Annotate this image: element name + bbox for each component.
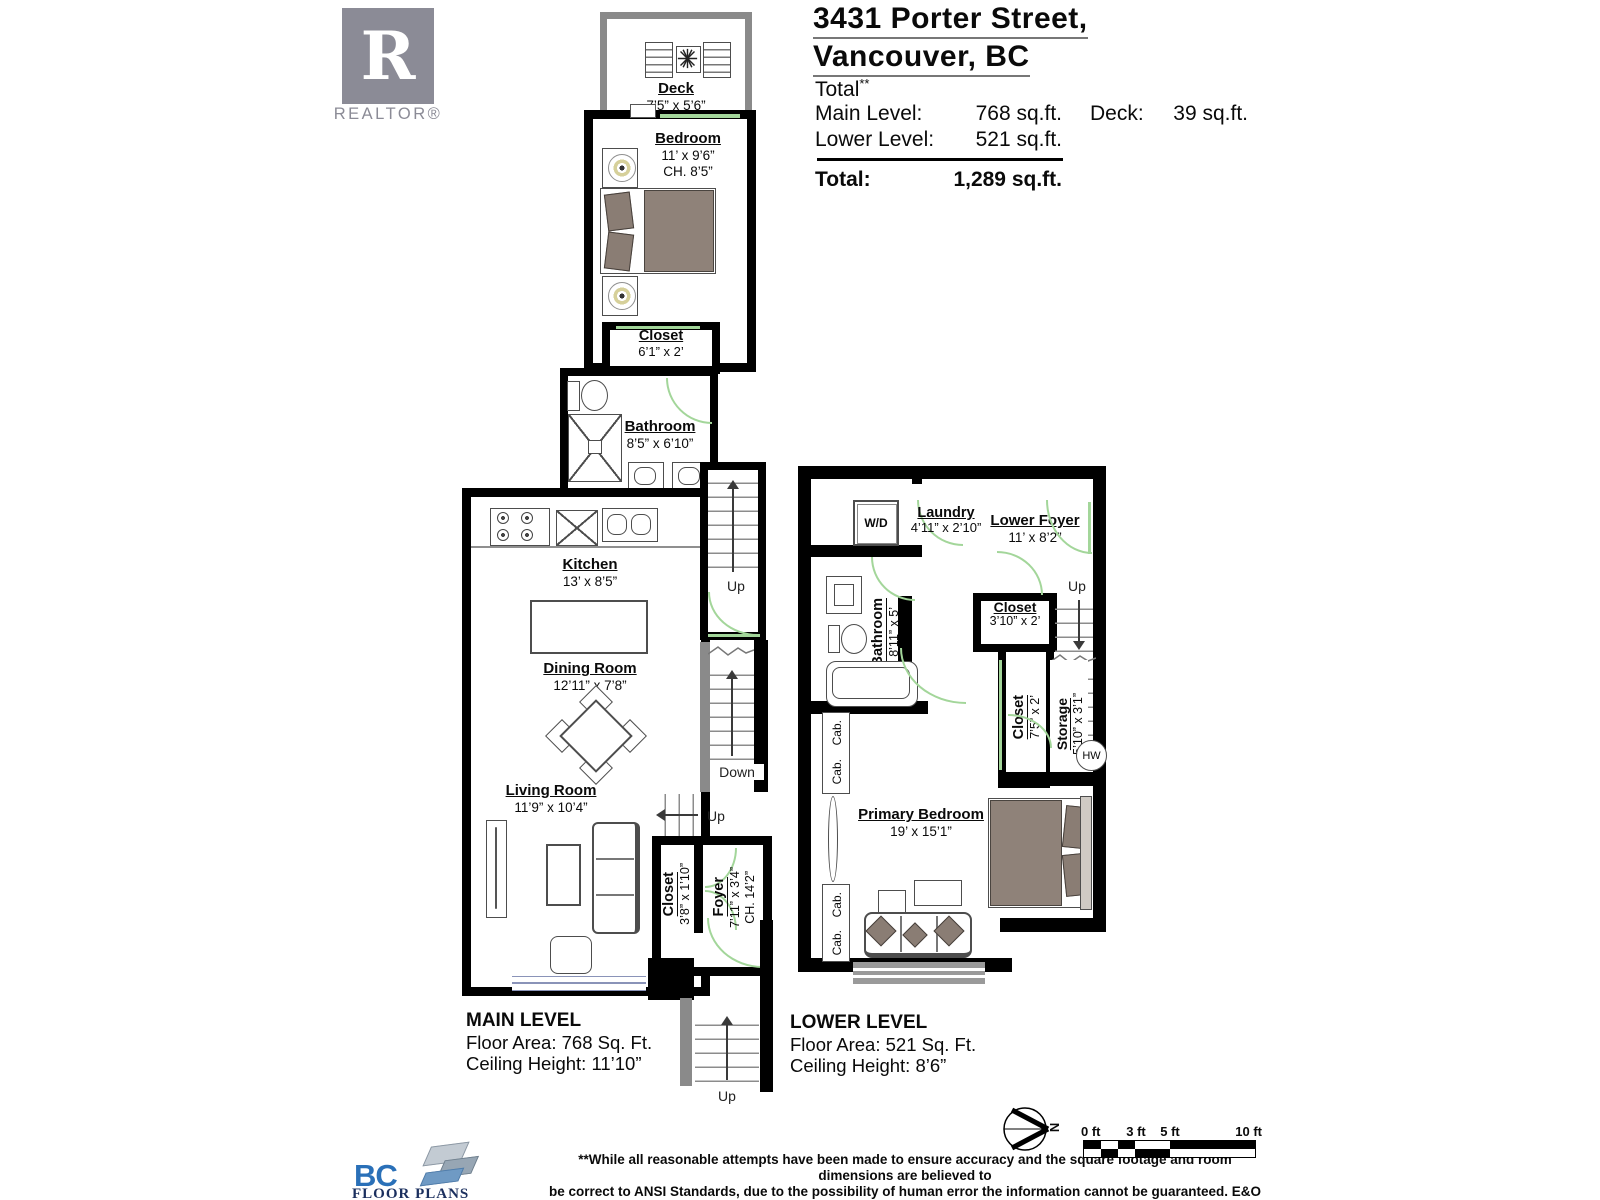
primary-bedroom-label: Primary Bedroom 19’ x 15’1” — [846, 806, 996, 840]
room-name: Dining Room — [505, 660, 675, 678]
burner-icon — [521, 529, 533, 541]
living-room-label: Living Room 11’9” x 10’4” — [471, 782, 631, 816]
entry-closet-label: Closet 3’8” x 1’10” — [658, 846, 694, 942]
cabinet-label: Cab. — [824, 924, 850, 962]
stairs-up-label: Up — [1062, 578, 1092, 594]
washer-dryer-icon: W/D — [853, 500, 899, 546]
hot-water-tank-icon: HW — [1076, 740, 1107, 771]
lower-level-value: 521 sq.ft. — [940, 128, 1062, 152]
scale-cell — [1135, 1141, 1170, 1149]
sketch-shape — [420, 1168, 465, 1187]
sink-basin — [678, 467, 700, 485]
compass-icon: N — [1002, 1104, 1064, 1154]
scale-cell — [1118, 1141, 1135, 1149]
wall-segment — [912, 466, 922, 484]
scale-label-5: 5 ft — [1154, 1124, 1186, 1139]
plant-icon — [677, 47, 698, 70]
wall-segment — [760, 920, 773, 1092]
deck-label: Deck 7’5” x 5’6” — [602, 80, 750, 114]
scale-cell — [1084, 1141, 1101, 1149]
dining-room-label: Dining Room 12’11” x 7’8” — [505, 660, 675, 694]
cabinet-label: Cab. — [824, 714, 850, 752]
wall-segment — [648, 958, 694, 1000]
room-dims: 6’1” x 2’ — [606, 345, 716, 359]
break-line — [708, 644, 754, 658]
scale-cell — [1170, 1149, 1255, 1157]
toilet-icon — [841, 624, 867, 654]
wall-segment — [798, 466, 811, 972]
fireplace-glass — [495, 827, 497, 909]
room-dims: 19’ x 15’1” — [846, 824, 996, 840]
headboard — [1080, 796, 1092, 910]
wall-segment — [1000, 918, 1106, 932]
storage-label: Storage 5’10” x 3’1” — [1050, 660, 1088, 788]
cab-text: Cab. — [830, 720, 844, 745]
bed-duvet — [644, 190, 714, 272]
cab-text: Cab. — [830, 892, 844, 917]
door-swing — [997, 551, 1043, 595]
room-ceiling: CH. 8’5” — [630, 164, 746, 180]
kitchen-label: Kitchen 13’ x 8’5” — [520, 556, 660, 590]
cabinet-label: Cab. — [824, 753, 850, 791]
room-dims: 11’ x 9’6” — [630, 148, 746, 164]
scale-cell — [1101, 1149, 1118, 1157]
wall-segment — [998, 772, 1106, 786]
laundry-label: Laundry 4’11” x 2’10” — [898, 505, 994, 536]
compass-glyph — [1002, 1104, 1054, 1154]
vanity-sink-icon — [826, 576, 862, 614]
coffee-table-icon — [546, 844, 581, 906]
room-name: Kitchen — [520, 556, 660, 574]
total-value: 1,289 sq.ft. — [940, 168, 1062, 192]
sink-basin — [631, 514, 651, 535]
lower-closet-label: Closet 3’10” x 2’ — [979, 600, 1051, 629]
realtor-logo-letter: R — [342, 8, 434, 104]
room-dims: 8’5” x 6’10” — [608, 436, 712, 452]
deck-chair-icon — [703, 42, 731, 78]
level-ceiling: Ceiling Height: 11’10” — [466, 1053, 726, 1074]
toilet-tank — [567, 381, 580, 411]
lower-level-footer: LOWER LEVEL Floor Area: 521 Sq. Ft. Ceil… — [790, 1012, 1090, 1076]
wall-segment — [798, 466, 1106, 479]
total-divider — [817, 158, 1063, 161]
dining-table-icon — [559, 699, 633, 773]
level-title: MAIN LEVEL — [466, 1010, 726, 1032]
bathtub-inner — [832, 667, 910, 699]
realtor-logo-text: REALTOR® — [328, 105, 448, 124]
fireplace-icon — [486, 820, 507, 918]
cab-text: Cab. — [830, 759, 844, 784]
bed-pillow — [604, 232, 634, 272]
room-dims: 3’10” x 2’ — [979, 615, 1051, 629]
wall-segment — [798, 545, 922, 557]
deck-door — [660, 114, 740, 118]
door-leaf — [1088, 502, 1091, 554]
lower-bathroom-label: Bathroom 8’11” x 5’ — [864, 592, 906, 672]
scale-cell — [1118, 1149, 1135, 1157]
room-name: Bathroom — [870, 598, 886, 666]
burner-icon — [497, 512, 509, 524]
closet-label: Closet 6’1” x 2’ — [606, 329, 716, 359]
bifold-door — [999, 660, 1002, 770]
floor-plan-page: R REALTOR® 3431 Porter Street, Vancouver… — [0, 0, 1600, 1200]
window-mullion — [512, 982, 646, 984]
room-name: Bedroom — [630, 130, 746, 148]
armchair-icon — [550, 936, 592, 974]
cab-text: Cab. — [830, 930, 844, 955]
window-icon — [512, 976, 646, 991]
room-dims: 13’ x 8’5” — [520, 574, 660, 590]
room-name: Bathroom — [608, 418, 712, 436]
stair-arrow — [726, 1018, 728, 1080]
wall-segment — [1093, 466, 1106, 931]
disclaimer-line2: be correct to ANSI Standards, due to the… — [545, 1184, 1265, 1200]
sink-basin — [607, 514, 627, 535]
room-name: Primary Bedroom — [846, 806, 996, 824]
mirror-door-icon — [828, 796, 838, 882]
scale-cell — [1135, 1149, 1170, 1157]
toilet-tank — [828, 625, 840, 653]
window-icon — [853, 962, 985, 984]
kitchen-island-icon — [530, 600, 648, 654]
page-title-address-line2: Vancouver, BC — [813, 40, 1030, 77]
wall-segment — [694, 845, 703, 933]
foyer-label: Foyer 7’11” x 3’4” CH. 14’2” — [706, 842, 762, 952]
stairs-up-label: Up — [702, 808, 730, 824]
toilet-icon — [581, 380, 608, 411]
sink-basin — [834, 584, 854, 606]
entry-door-swing — [1046, 500, 1092, 554]
burner-icon — [497, 529, 509, 541]
kitchen-sink-icon — [602, 508, 658, 542]
room-name: Laundry — [898, 505, 994, 521]
total-stars: ** — [859, 76, 869, 91]
sofa-seam — [596, 858, 634, 860]
level-title: LOWER LEVEL — [790, 1012, 1090, 1034]
disclaimer: **While all reasonable attempts have bee… — [545, 1152, 1265, 1200]
bc-logo-sketch-icon — [420, 1142, 484, 1188]
scale-cell — [1084, 1149, 1101, 1157]
scale-cell — [1170, 1141, 1255, 1149]
scale-label-10: 10 ft — [1224, 1124, 1262, 1139]
window-mullion — [853, 975, 985, 978]
room-dims: 4’11” x 2’10” — [898, 521, 994, 536]
page-title-address-line1: 3431 Porter Street, — [813, 2, 1088, 39]
room-name: Closet — [979, 600, 1051, 615]
dishwasher-icon — [556, 510, 598, 546]
cabinet-label: Cab. — [824, 886, 850, 924]
side-table-icon — [914, 880, 962, 906]
room-ceiling: CH. 14’2” — [743, 871, 757, 924]
room-name: Closet — [606, 329, 716, 345]
total-label: Total: — [815, 168, 955, 192]
bed-duvet — [990, 800, 1062, 906]
stair-rail-wall — [700, 642, 710, 792]
room-dims: 7’11” x 3’4” — [728, 867, 742, 928]
bc-logo-subtext: FLOOR PLANS — [352, 1186, 469, 1200]
bathroom-label: Bathroom 8’5” x 6’10” — [608, 418, 712, 452]
main-level-value: 768 sq.ft. — [940, 102, 1062, 126]
shower-drain — [588, 440, 602, 454]
scale-bar — [1083, 1140, 1256, 1158]
total-header: Total** — [815, 76, 869, 102]
room-name: Deck — [602, 80, 750, 98]
room-name: Closet — [661, 872, 677, 916]
stairs-up-label: Up — [712, 1088, 742, 1104]
sink-basin — [634, 467, 656, 485]
stair-arrow — [732, 482, 734, 572]
compass-n-label: N — [1047, 1123, 1062, 1132]
level-area: Floor Area: 521 Sq. Ft. — [790, 1034, 1090, 1055]
deck-area-value: 39 sq.ft. — [1160, 102, 1248, 126]
stair-arrow — [731, 672, 733, 756]
window-mullion — [853, 968, 985, 971]
sofa-seam — [596, 894, 634, 896]
stairs-down-label: Down — [710, 764, 764, 780]
scale-label-0: 0 ft — [1081, 1124, 1115, 1139]
deck-table-icon — [676, 46, 701, 73]
bedroom-label: Bedroom 11’ x 9’6” CH. 8’5” — [630, 130, 746, 180]
room-dims: 11’9” x 10’4” — [471, 800, 631, 816]
door-leaf — [708, 634, 760, 637]
room-dims: 3’8” x 1’10” — [678, 863, 692, 925]
washer-dryer-label: W/D — [855, 502, 897, 544]
level-area: Floor Area: 768 Sq. Ft. — [466, 1032, 726, 1053]
burner-icon — [521, 512, 533, 524]
room-name: Foyer — [711, 877, 727, 917]
deck-area-label: Deck: — [1090, 102, 1170, 126]
total-word: Total — [815, 78, 859, 101]
deck-chair-icon — [645, 42, 673, 78]
realtor-logo-icon: R — [342, 8, 434, 104]
main-level-footer: MAIN LEVEL Floor Area: 768 Sq. Ft. Ceili… — [466, 1010, 726, 1074]
dining-set-icon — [552, 694, 640, 778]
counter-edge — [471, 546, 701, 548]
room-dims: 8’11” x 5’ — [887, 607, 901, 657]
room-name: Storage — [1054, 698, 1070, 750]
bed-pillow — [604, 192, 634, 232]
scale-label-3: 3 ft — [1120, 1124, 1152, 1139]
lamp-icon — [608, 282, 636, 310]
scale-cell — [1101, 1141, 1118, 1149]
level-ceiling: Ceiling Height: 8’6” — [790, 1055, 1090, 1076]
stair-arrow — [1078, 600, 1080, 648]
room-name: Living Room — [471, 782, 631, 800]
sofa-icon — [592, 822, 640, 934]
stair-arrow — [658, 814, 698, 816]
main-level-label: Main Level: — [815, 102, 955, 126]
lamp-icon — [608, 154, 636, 182]
window-icon — [630, 104, 656, 118]
